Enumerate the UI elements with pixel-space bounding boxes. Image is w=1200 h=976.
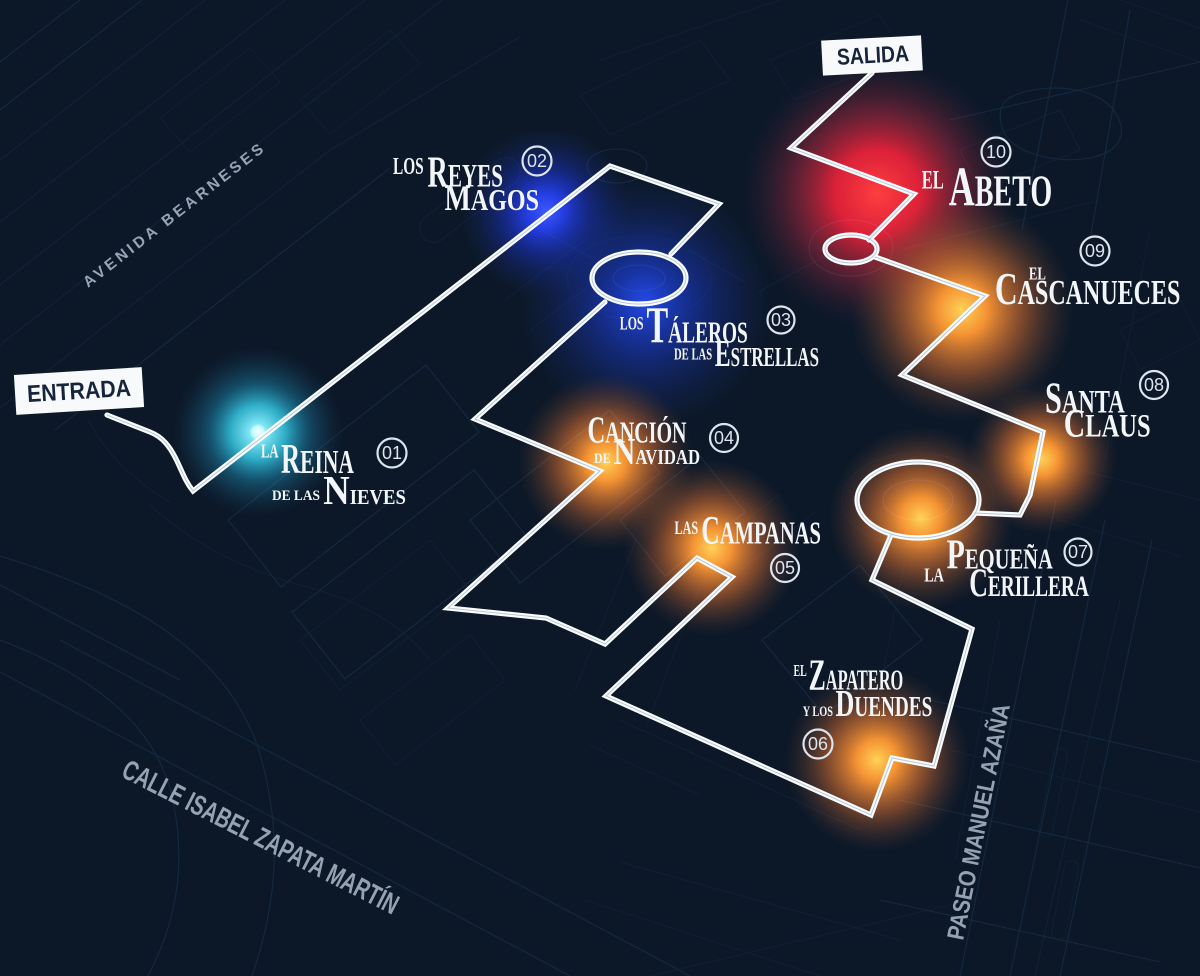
svg-text:EL: EL <box>922 166 944 195</box>
svg-text:01: 01 <box>382 443 402 463</box>
svg-text:05: 05 <box>775 558 795 578</box>
svg-text:02: 02 <box>527 151 547 171</box>
svg-text:CLAUS: CLAUS <box>1064 401 1151 445</box>
svg-text:07: 07 <box>1068 542 1088 562</box>
svg-text:MAGOS: MAGOS <box>445 177 540 217</box>
svg-text:09: 09 <box>1085 241 1105 261</box>
svg-text:SALIDA: SALIDA <box>836 40 909 70</box>
svg-text:04: 04 <box>714 428 734 448</box>
svg-text:06: 06 <box>808 734 828 754</box>
svg-text:08: 08 <box>1144 375 1164 395</box>
svg-text:10: 10 <box>986 142 1006 162</box>
svg-text:CANCIÓN: CANCIÓN <box>588 408 687 451</box>
svg-text:03: 03 <box>771 310 791 330</box>
